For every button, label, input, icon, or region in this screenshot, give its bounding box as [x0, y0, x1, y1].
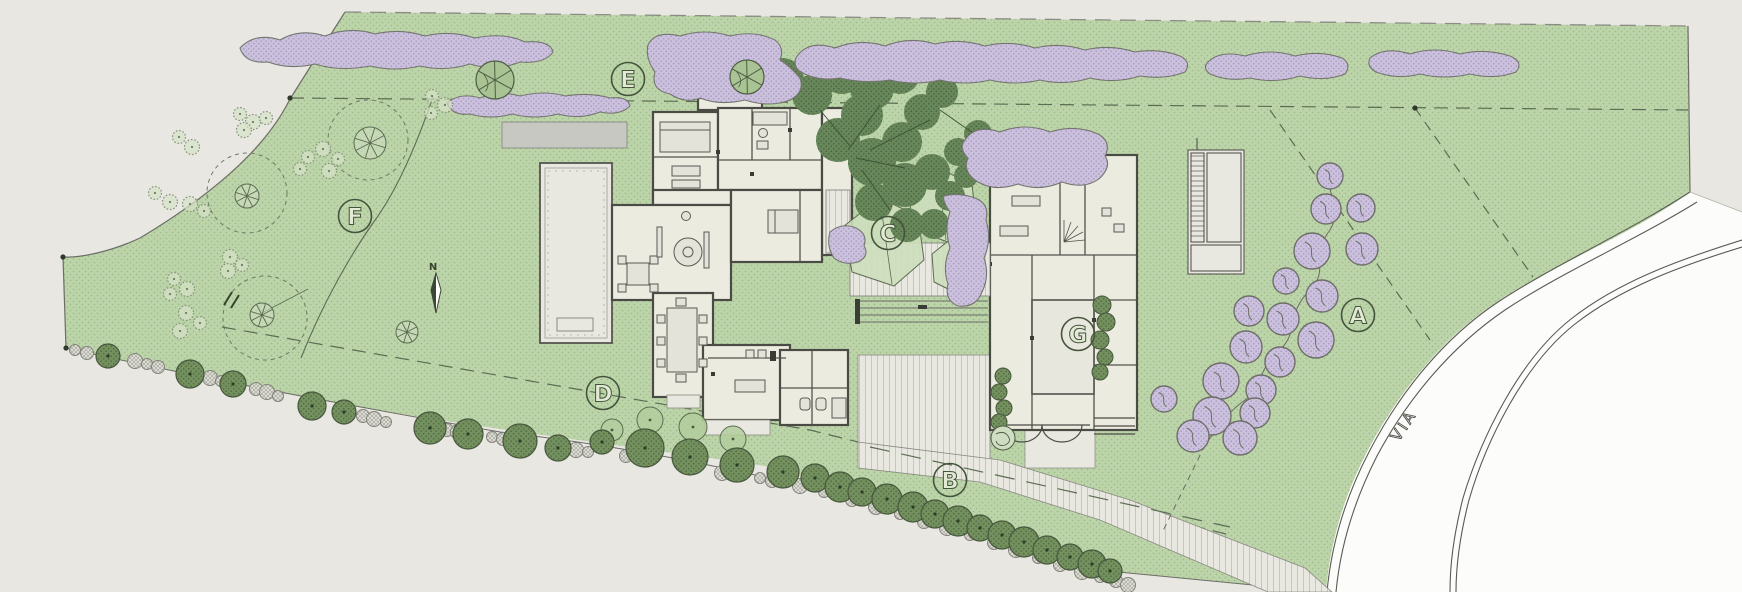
- svg-text:E: E: [620, 67, 636, 93]
- west-court: [540, 163, 612, 343]
- svg-text:G: G: [1069, 322, 1088, 348]
- svg-text:B: B: [941, 468, 959, 494]
- gravel-pad: [502, 122, 627, 148]
- svg-text:A: A: [1349, 303, 1367, 329]
- svg-text:F: F: [347, 204, 363, 230]
- svg-text:C: C: [880, 221, 897, 247]
- north-arrow-label: N: [429, 262, 437, 273]
- site-plan-canvas: N VIA A B C D E F: [0, 0, 1742, 592]
- svg-text:D: D: [593, 381, 612, 407]
- landscape-site-plan: N VIA A B C D E F: [0, 0, 1742, 592]
- shrub-swirl: [991, 426, 1015, 450]
